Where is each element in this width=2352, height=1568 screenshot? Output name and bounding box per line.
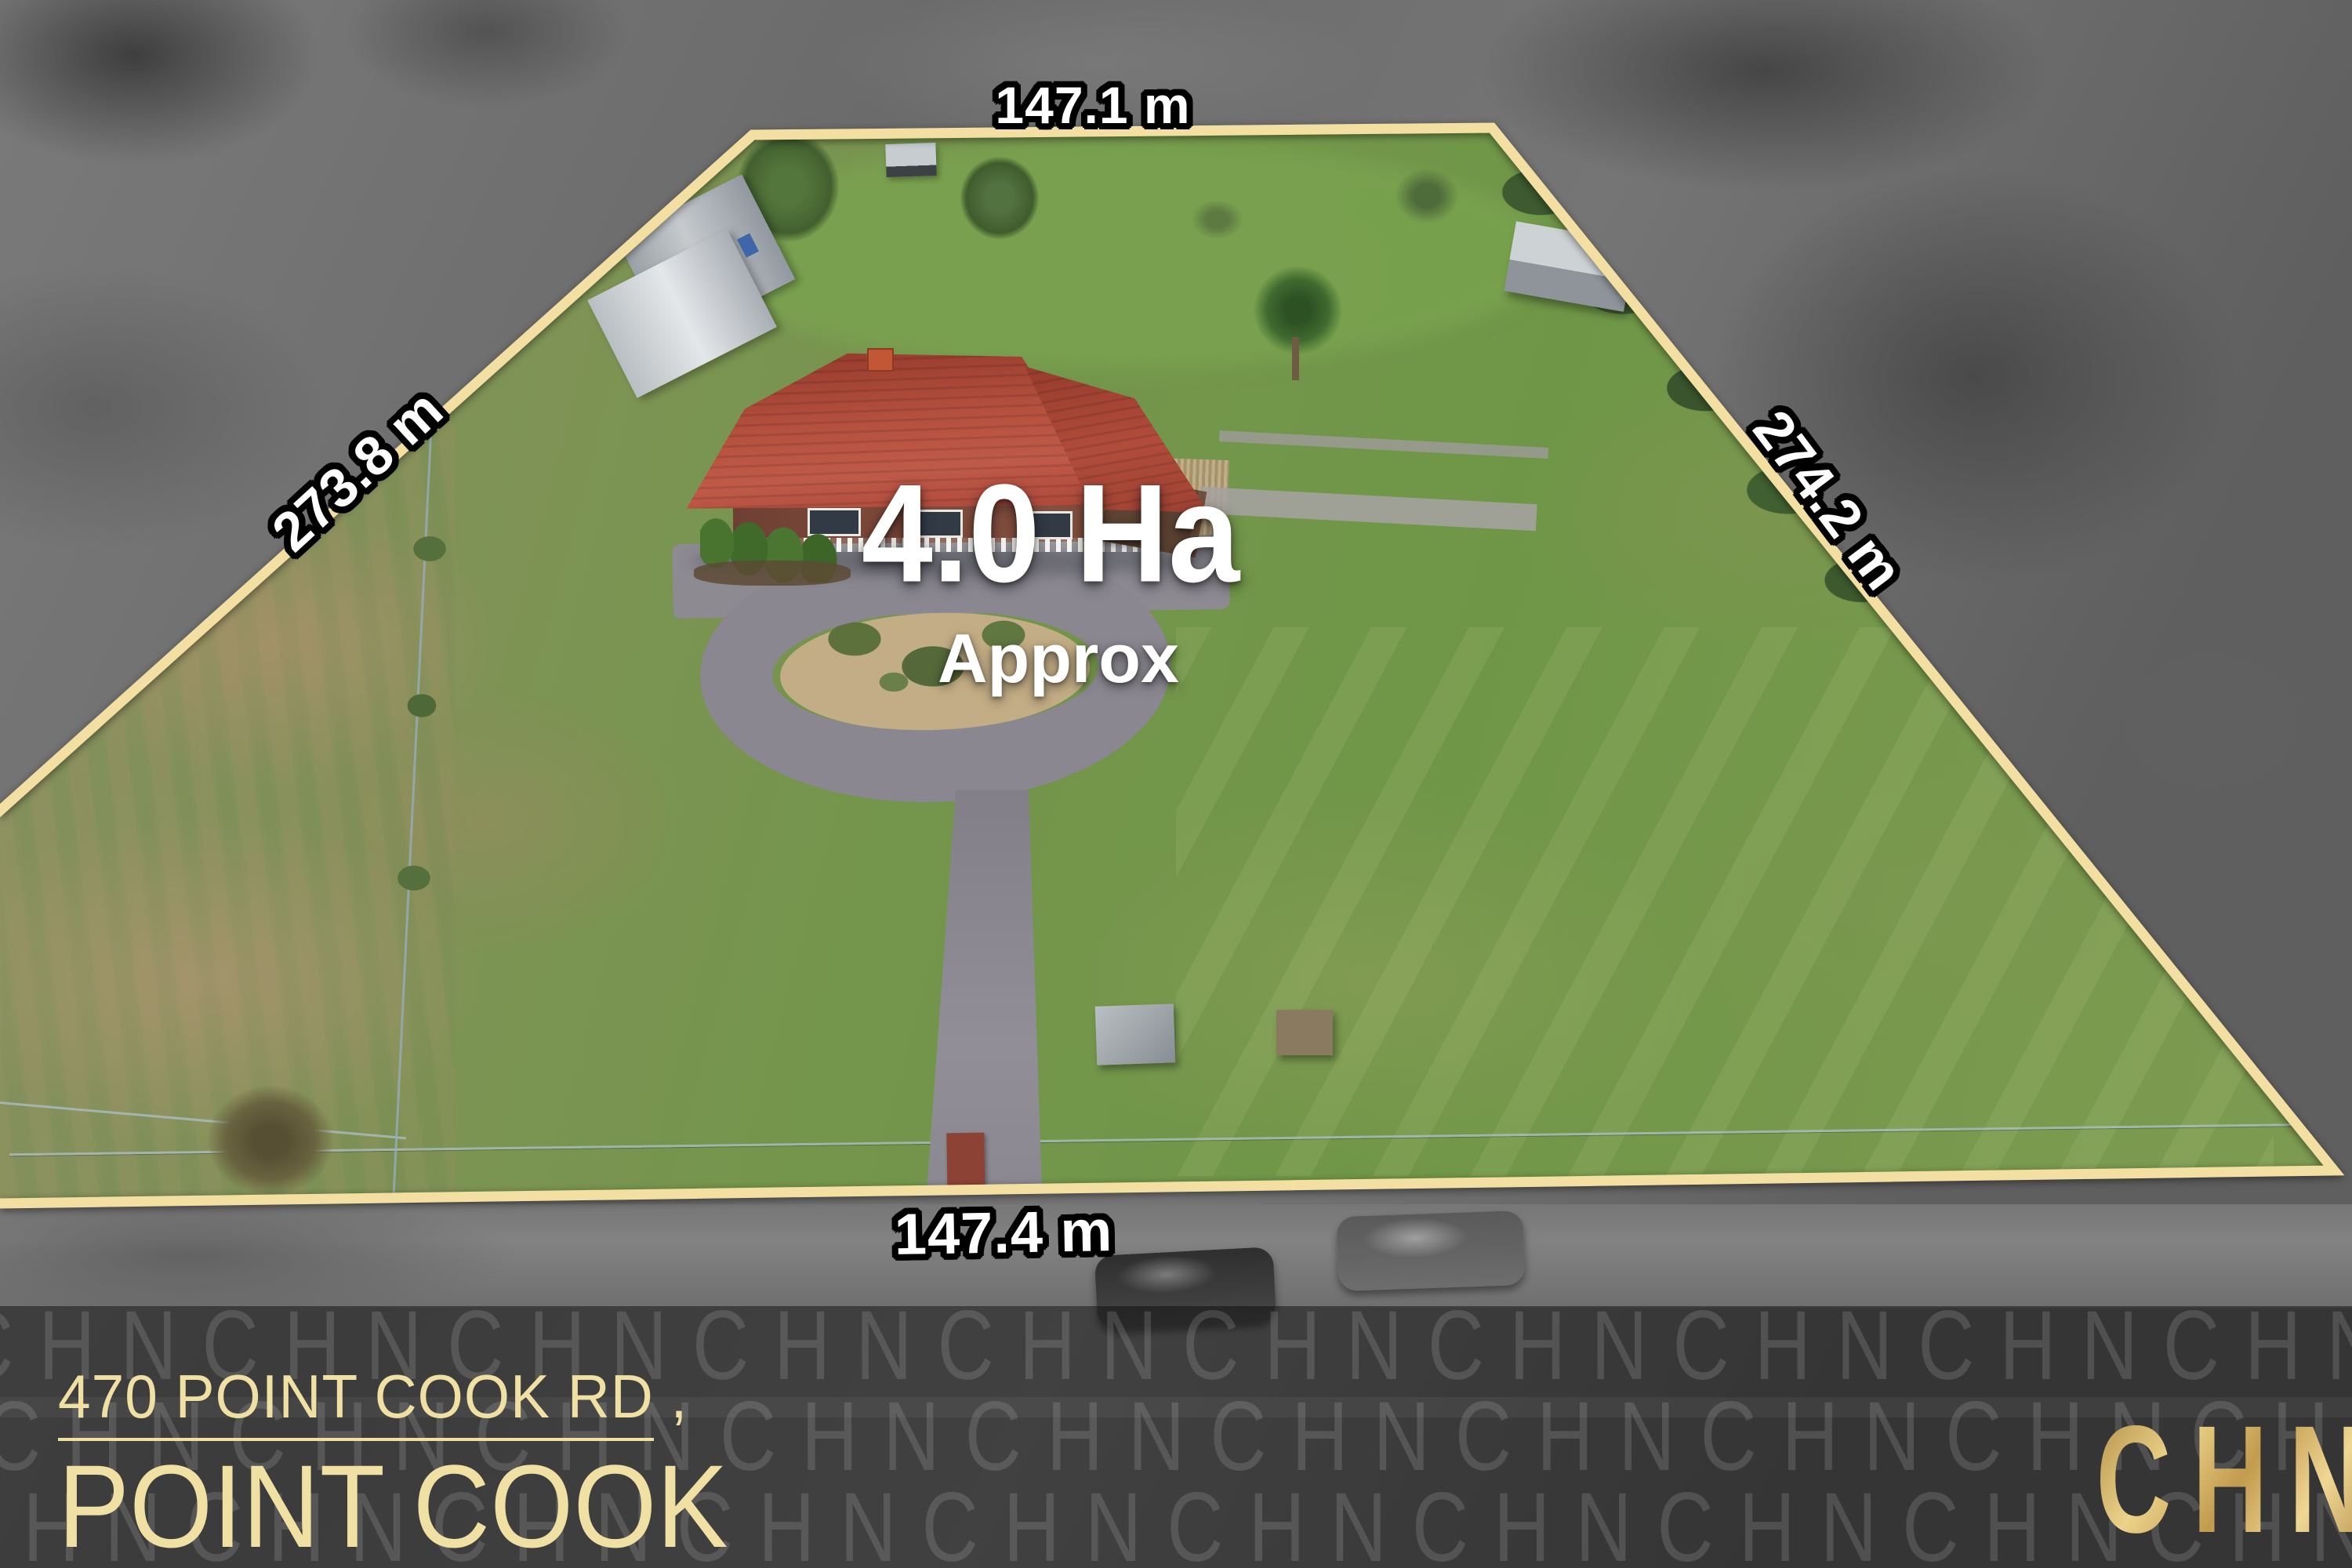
land-area-label: 4.0 Ha [862,453,1240,614]
aerial-property-photo: 147.1 m 273.8 m 274.2 m 147.4 m 4.0 Ha A… [0,0,2352,1568]
measurement-bottom: 147.4 m [894,1197,1113,1268]
property-address: 470 POINT COOK RD , POINT COOK [58,1366,794,1565]
address-street: 470 POINT COOK RD , [58,1366,764,1427]
address-suburb: POINT COOK [58,1447,728,1565]
measurement-top: 147.1 m [995,75,1190,135]
agency-logo: CHN [1960,1403,2297,1556]
area-approx-label: Approx [938,619,1179,699]
agency-logo-text: CHN [2096,1403,2352,1556]
